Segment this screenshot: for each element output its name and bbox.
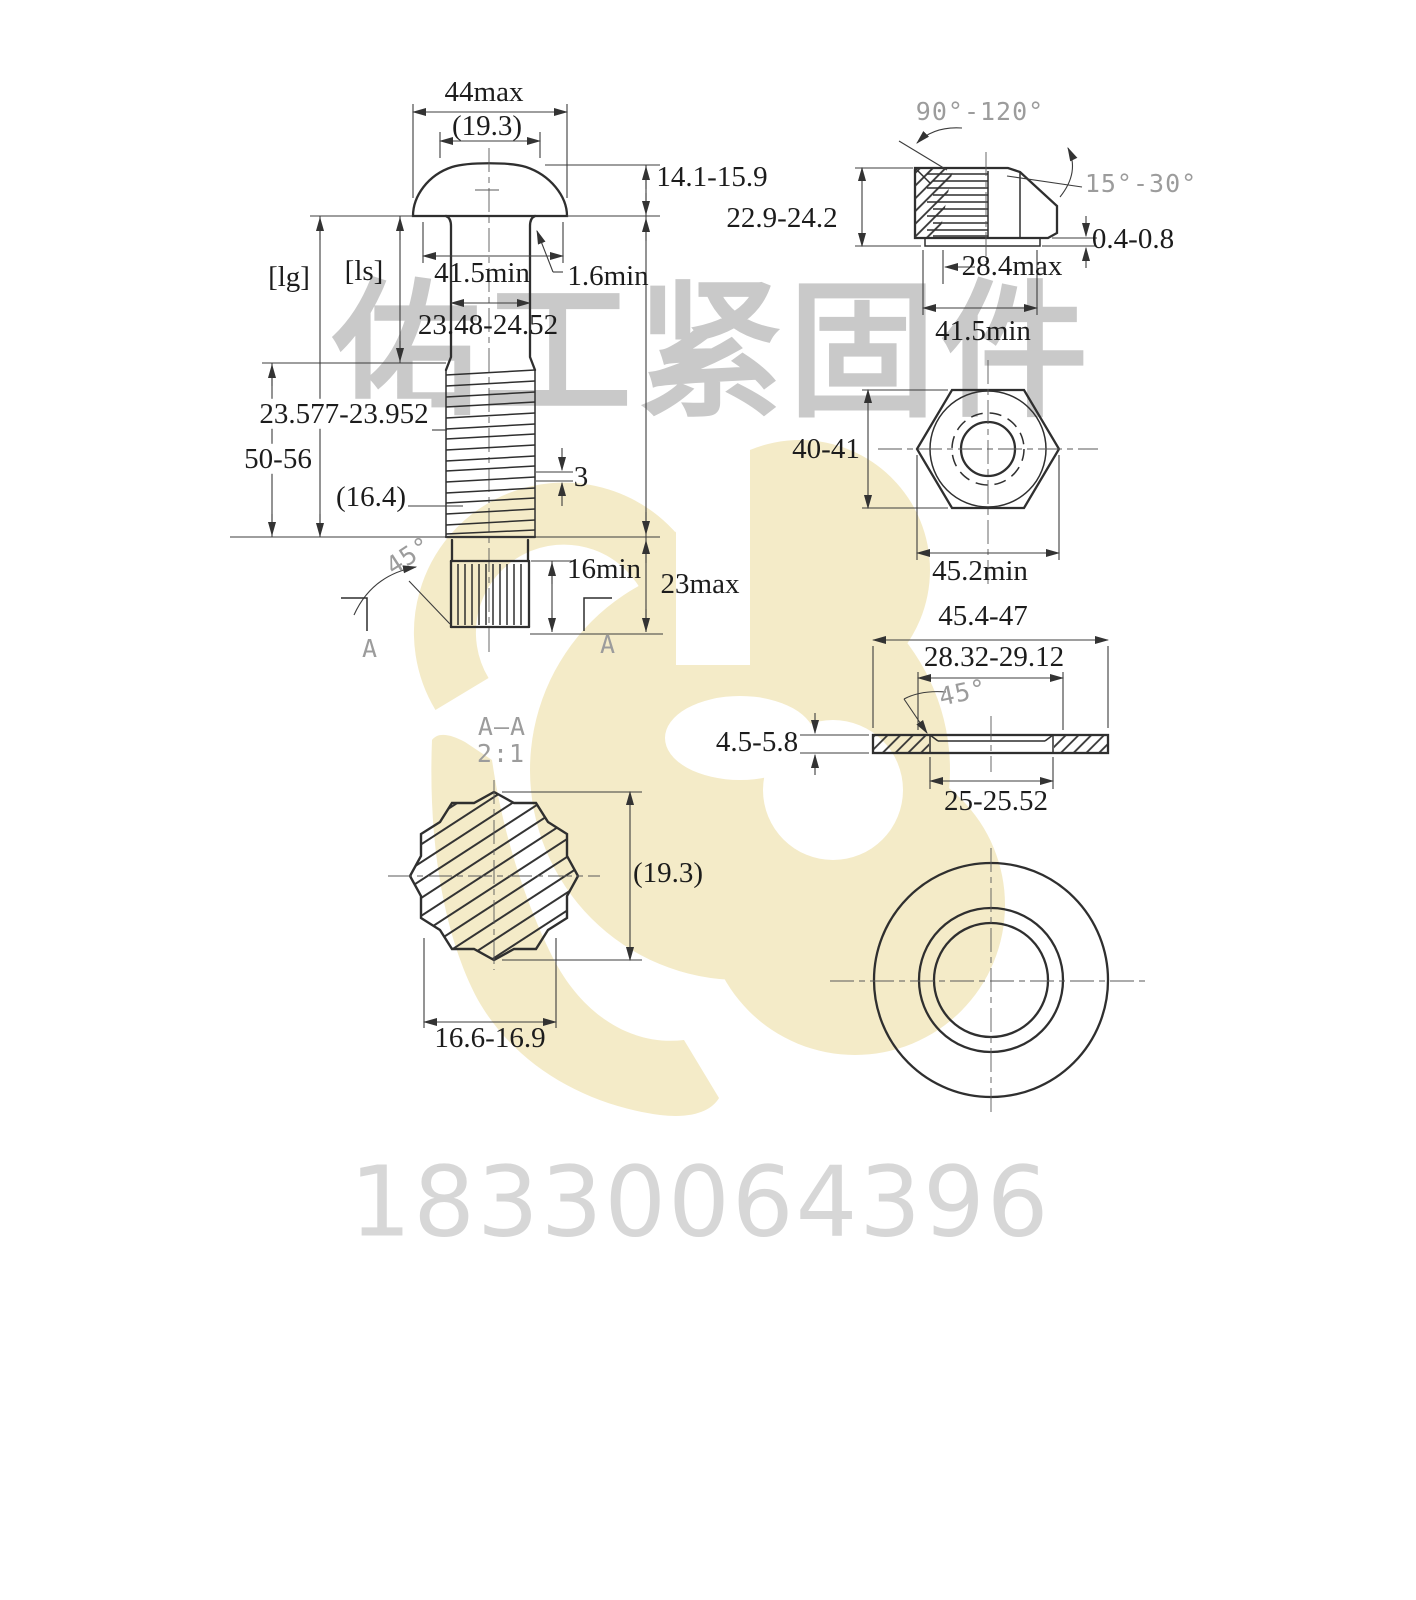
section-view-label: A—A [478,714,526,740]
dim-washer-chamfer-dia: 28.32-29.12 [924,642,1064,672]
dim-thread-dia: 23.577-23.952 [256,399,431,429]
dim-washer-chamfer-angle: 45° [937,675,990,711]
dim-section-ref-dia: (19.3) [633,858,703,888]
dim-grip-length-label: [lg] [268,262,310,292]
dim-thread-length: 50-56 [241,444,315,474]
section-letter-left: A [362,636,378,662]
dim-spline-ref: (16.4) [336,482,406,512]
dim-countersink-angle: 90°-120° [916,99,1044,125]
dim-across-flats: 40-41 [792,434,860,464]
dim-shank-length-label: [ls] [345,256,384,286]
dim-spline-length: 16min [567,554,641,584]
engineering-drawing-page: 佑工紧固件 18330064396 [0,0,1416,1600]
section-letter-right: A [600,632,616,658]
dim-washer-face-dia: 28.4max [962,251,1063,281]
dim-bearing-dia: 41.5min [434,258,530,288]
dim-nut-bearing-dia: 41.5min [935,316,1031,346]
dim-across-corners: 45.2min [932,556,1028,586]
dim-nut-height: 22.9-24.2 [726,203,837,233]
dim-washer-thickness: 4.5-5.8 [716,727,798,757]
dim-thread-pitch: 3 [574,462,589,492]
dimension-labels: 44max (19.3) 14.1-15.9 [lg] [ls] 41.5min… [0,0,1416,1600]
dim-head-height: 14.1-15.9 [656,162,767,192]
dim-washer-face-height: 0.4-0.8 [1092,224,1174,254]
dim-section-across-flats: 16.6-16.9 [434,1023,545,1053]
dim-shank-dia: 23.48-24.52 [418,310,558,340]
section-scale-label: 2:1 [477,741,525,767]
dim-head-ref-dia: (19.3) [452,111,522,141]
dim-washer-outer-dia: 45.4-47 [938,601,1027,631]
dim-washer-hole-dia: 25-25.52 [944,786,1048,816]
dim-chamfer-angle: 45° [382,532,437,580]
dim-fillet-radius: 1.6min [567,261,648,291]
dim-cone-angle: 15°-30° [1085,171,1197,197]
dim-head-width: 44max [445,77,524,107]
dim-end-length: 23max [661,569,740,599]
